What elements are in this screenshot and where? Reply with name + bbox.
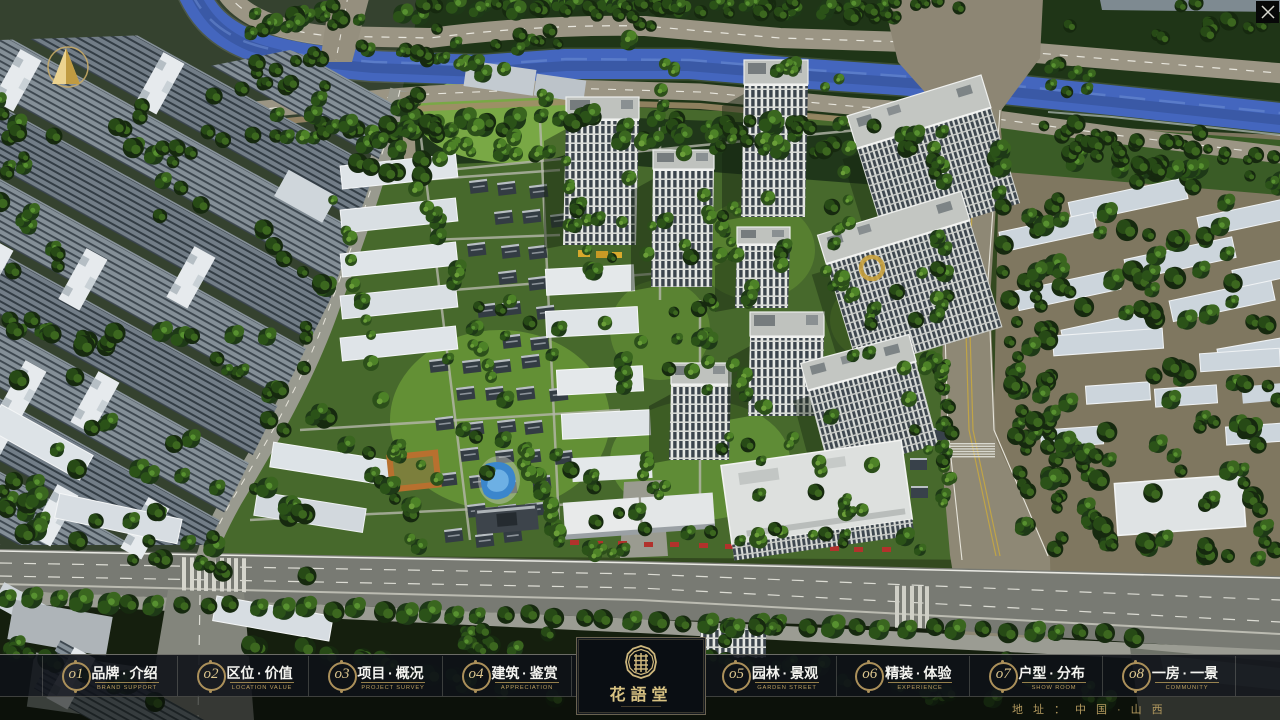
svg-text:花語堂: 花語堂 [609, 685, 672, 704]
